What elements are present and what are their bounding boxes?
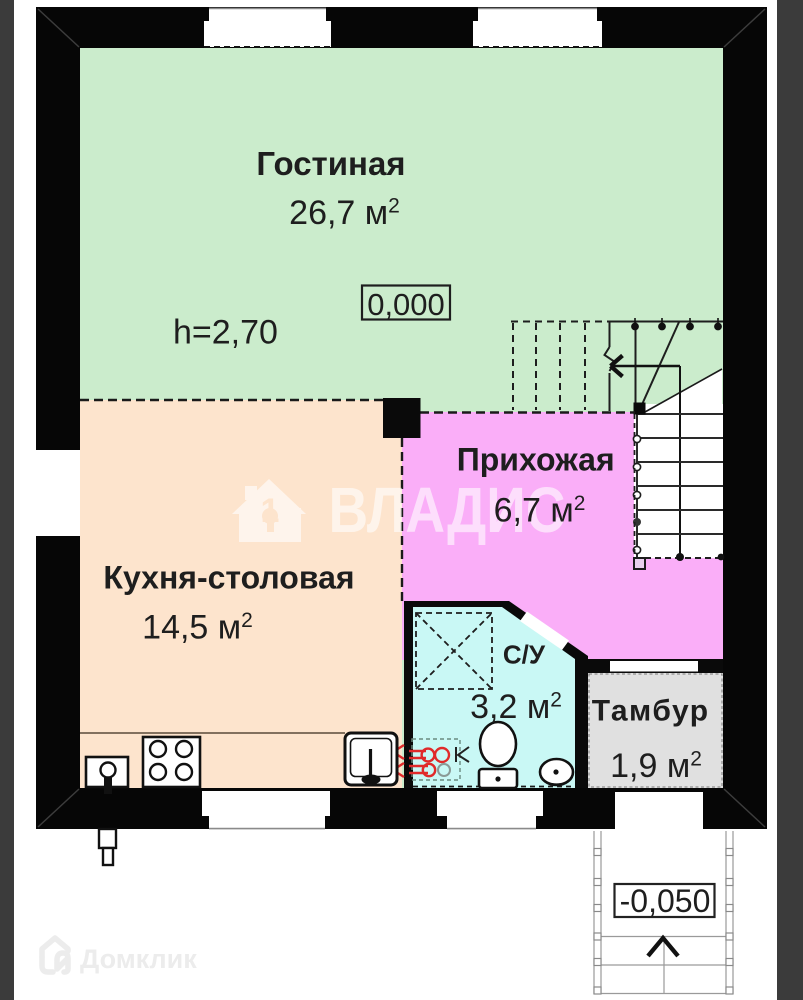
svg-text:-0,050: -0,050 xyxy=(620,883,711,919)
svg-text:Прихожая: Прихожая xyxy=(457,442,615,478)
svg-text:3,2 м2: 3,2 м2 xyxy=(470,688,562,726)
svg-text:Гостиная: Гостиная xyxy=(256,145,405,182)
svg-text:Домклик: Домклик xyxy=(80,944,197,974)
svg-text:0,000: 0,000 xyxy=(367,287,445,322)
svg-text:Тамбур: Тамбур xyxy=(592,695,710,728)
svg-text:1,9 м2: 1,9 м2 xyxy=(610,747,702,785)
svg-text:6,7 м2: 6,7 м2 xyxy=(494,492,586,530)
svg-text:h=2,70: h=2,70 xyxy=(173,314,278,352)
svg-text:14,5 м2: 14,5 м2 xyxy=(142,609,253,647)
svg-text:С/У: С/У xyxy=(503,640,546,670)
svg-text:Кухня-столовая: Кухня-столовая xyxy=(103,560,354,596)
svg-text:26,7 м2: 26,7 м2 xyxy=(289,194,400,232)
